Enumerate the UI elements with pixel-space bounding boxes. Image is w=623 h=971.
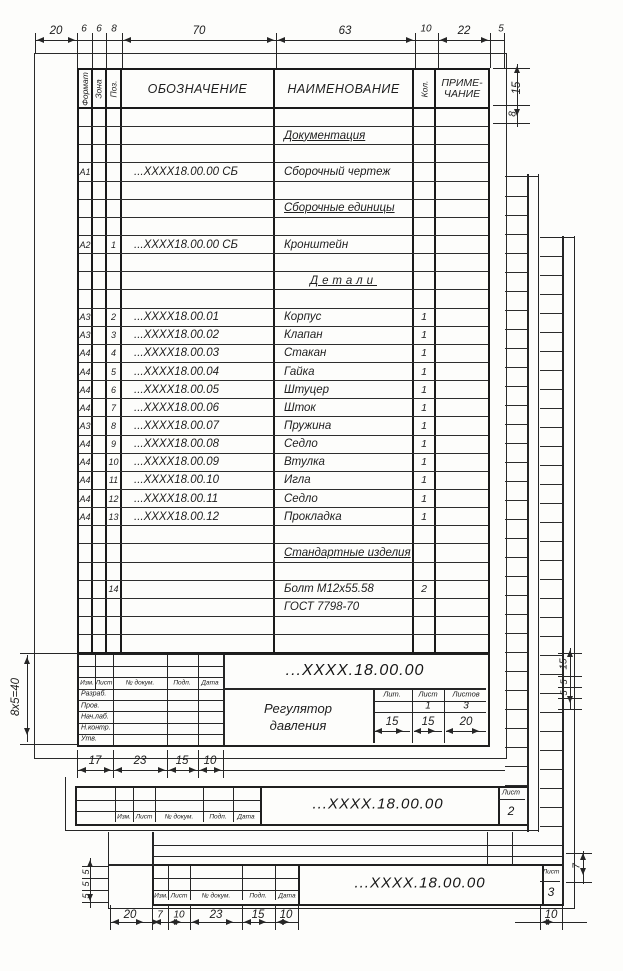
spec-cell-qty-text: 1 xyxy=(421,311,427,323)
dim-strip-5b: 5 xyxy=(559,690,569,695)
rule-line xyxy=(540,881,560,882)
spec-cell-name-text: Седло xyxy=(284,493,318,505)
rule-line xyxy=(115,788,116,822)
spec-cell-name: Штуцер xyxy=(275,381,414,398)
dimension-arrow xyxy=(87,894,93,901)
spec-cell-name xyxy=(275,563,414,580)
s3-designation: ...ХХХХ.18.00.00 xyxy=(354,875,485,892)
spec-cell-name-text: Игла xyxy=(284,474,311,486)
dim-b1-23: 23 xyxy=(134,755,147,767)
dimension-arrow xyxy=(259,919,266,925)
spec-cell-zone xyxy=(93,417,107,434)
header-name-label: НАИМЕНОВАНИЕ xyxy=(287,82,399,96)
title-block-designation: ...ХХХХ.18.00.00 xyxy=(286,662,425,680)
spec-cell-qty xyxy=(414,109,436,126)
spec-row: 14Болт М12х55.582 xyxy=(79,581,488,599)
product-title: Регулятор давления xyxy=(246,690,350,743)
spec-cell-note xyxy=(436,381,488,398)
spec-cell-zone xyxy=(93,182,107,199)
rule-line xyxy=(540,906,541,930)
tb-nkontr: Н.контр. xyxy=(81,725,111,732)
tb-nachlab: Нач.лаб. xyxy=(81,714,109,721)
dim-lit-15b: 15 xyxy=(422,716,435,728)
rule-line xyxy=(562,236,564,903)
spec-cell-pos: 3 xyxy=(107,327,122,344)
spec-cell-qty-text: 1 xyxy=(421,456,427,468)
spec-cell-format-text: А3 xyxy=(79,421,90,431)
dimension-arrow xyxy=(79,767,86,773)
rule-line xyxy=(152,845,562,846)
tb-lit-listov: Листов xyxy=(452,690,479,699)
dim-top-63: 63 xyxy=(339,25,352,37)
dim-b1-17: 17 xyxy=(89,755,102,767)
spec-cell-qty xyxy=(414,290,436,307)
spec-cell-format xyxy=(79,145,93,162)
spec-cell-qty xyxy=(414,127,436,144)
spec-cell-designation xyxy=(122,182,275,199)
s2-list: Лист xyxy=(136,814,153,821)
s2-sheet-value: 2 xyxy=(508,804,515,818)
rule-line xyxy=(108,832,109,909)
rule-line xyxy=(154,890,298,891)
rule-line xyxy=(65,777,66,831)
spec-row: А49...ХХХХ18.00.08Седло1 xyxy=(79,436,488,454)
rule-line xyxy=(79,700,223,701)
spec-cell-name-text: Стандартные изделия xyxy=(284,547,411,559)
spec-row: А47...ХХХХ18.00.06Шток1 xyxy=(79,399,488,417)
spec-cell-designation-text: ...ХХХХ18.00.12 xyxy=(134,511,219,523)
spec-cell-note xyxy=(436,599,488,616)
rule-line xyxy=(77,33,78,68)
rule-line xyxy=(298,905,299,930)
s2-sheet-label: Лист xyxy=(502,790,520,797)
rule-line xyxy=(82,866,108,867)
spec-cell-qty-text: 1 xyxy=(421,511,427,523)
spec-cell-note xyxy=(436,436,488,453)
spec-cell-qty-text: 2 xyxy=(421,583,427,595)
spec-cell-designation-text: ...ХХХХ18.00.06 xyxy=(134,402,219,414)
spec-cell-qty: 1 xyxy=(414,472,436,489)
rule-line xyxy=(77,770,505,771)
spec-cell-name: ГОСТ 7798-70 xyxy=(275,599,414,616)
spec-cell-note xyxy=(436,563,488,580)
spec-cell-designation: ...ХХХХ18.00.00 СБ xyxy=(122,163,275,180)
sheet3-edge-rows xyxy=(540,238,562,866)
spec-cell-qty: 1 xyxy=(414,490,436,507)
spec-cell-format xyxy=(79,526,93,543)
tb-lit-list: Лист xyxy=(418,690,437,699)
spec-row: А410...ХХХХ18.00.09Втулка1 xyxy=(79,454,488,472)
rule-line xyxy=(20,744,77,745)
spec-cell-qty-text: 1 xyxy=(421,493,427,505)
spec-cell-pos: 11 xyxy=(107,472,122,489)
spec-cell-note xyxy=(436,544,488,561)
dimension-arrow xyxy=(267,37,274,43)
rule-line xyxy=(113,750,114,778)
spec-cell-designation: ...ХХХХ18.00.11 xyxy=(122,490,275,507)
rule-line xyxy=(373,701,486,702)
rule-line xyxy=(493,123,530,124)
spec-cell-qty xyxy=(414,544,436,561)
spec-cell-pos-text: 1 xyxy=(111,240,116,250)
spec-cell-designation xyxy=(122,145,275,162)
spec-cell-pos xyxy=(107,127,122,144)
rule-line xyxy=(538,174,539,832)
spec-cell-qty xyxy=(414,563,436,580)
rule-line xyxy=(82,878,108,879)
spec-cell-name: Стандартные изделия xyxy=(275,544,414,561)
spec-cell-pos: 12 xyxy=(107,490,122,507)
tb-col-data: Дата xyxy=(201,680,218,687)
spec-cell-designation xyxy=(122,254,275,271)
tb-col-podp: Подп. xyxy=(173,680,190,687)
sheet2-edge-rows xyxy=(505,178,527,788)
spec-cell-name: Гайка xyxy=(275,363,414,380)
dimension-arrow xyxy=(481,37,488,43)
spec-cell-qty-text: 1 xyxy=(421,474,427,486)
spec-cell-designation-text: ...ХХХХ18.00.04 xyxy=(134,366,219,378)
spec-cell-designation: ...ХХХХ18.00.01 xyxy=(122,309,275,326)
spec-cell-name-text: Клапан xyxy=(284,329,323,341)
dim-strip-15: 15 xyxy=(559,658,570,669)
spec-row: А412...ХХХХ18.00.11Седло1 xyxy=(79,490,488,508)
spec-cell-name-text: Штуцер xyxy=(284,384,329,396)
s3-sheet-label: Лист xyxy=(543,869,560,876)
rule-line xyxy=(168,866,169,900)
spec-cell-pos-text: 10 xyxy=(108,457,118,467)
spec-row: Сборочные единицы xyxy=(79,200,488,218)
tb-col-dokum: № докум. xyxy=(126,680,155,687)
spec-cell-name: Игла xyxy=(275,472,414,489)
rule-line xyxy=(504,33,505,68)
spec-cell-zone xyxy=(93,436,107,453)
rule-line xyxy=(79,723,223,724)
spec-cell-name-text: Прокладка xyxy=(284,511,342,523)
dim-strip-5a: 5 xyxy=(559,679,569,684)
spec-row xyxy=(79,526,488,544)
s3-izm: Изм. xyxy=(154,893,168,900)
spec-cell-pos: 9 xyxy=(107,436,122,453)
spec-cell-format: А4 xyxy=(79,454,93,471)
spec-cell-zone xyxy=(93,345,107,362)
rule-line xyxy=(82,902,108,903)
spec-cell-note xyxy=(436,290,488,307)
rule-line xyxy=(223,688,486,690)
rule-line xyxy=(562,906,563,930)
spec-cell-designation xyxy=(122,290,275,307)
spec-cell-format xyxy=(79,200,93,217)
dimension-arrow xyxy=(580,868,586,875)
header-designation-label: ОБОЗНАЧЕНИЕ xyxy=(148,82,248,96)
spec-cell-qty: 1 xyxy=(414,436,436,453)
tb-col-list: Лист xyxy=(96,680,113,687)
spec-cell-pos xyxy=(107,109,122,126)
rule-line xyxy=(512,832,513,865)
spec-cell-qty xyxy=(414,272,436,289)
spec-cell-note xyxy=(436,635,488,652)
spec-row xyxy=(79,254,488,272)
spec-row: А413...ХХХХ18.00.12Прокладка1 xyxy=(79,508,488,526)
spec-row: А411...ХХХХ18.00.10Игла1 xyxy=(79,472,488,490)
dim-lit-15a: 15 xyxy=(386,716,399,728)
dimension-arrow xyxy=(112,919,119,925)
spec-cell-format xyxy=(79,617,93,634)
spec-cell-qty-text: 1 xyxy=(421,438,427,450)
spec-cell-format xyxy=(79,109,93,126)
rule-line xyxy=(154,878,298,879)
spec-row: А33...ХХХХ18.00.02Клапан1 xyxy=(79,327,488,345)
rule-line xyxy=(223,655,225,745)
spec-cell-format: А4 xyxy=(79,363,93,380)
spec-cell-note xyxy=(436,454,488,471)
spec-cell-designation-text: ...ХХХХ18.00.07 xyxy=(134,420,219,432)
spec-cell-zone xyxy=(93,327,107,344)
spec-cell-zone xyxy=(93,581,107,598)
rule-line xyxy=(490,33,491,68)
spec-cell-zone xyxy=(93,381,107,398)
spec-cell-qty: 1 xyxy=(414,381,436,398)
spec-cell-zone xyxy=(93,544,107,561)
rule-line xyxy=(152,832,154,865)
spec-cell-qty: 1 xyxy=(414,309,436,326)
spec-cell-name xyxy=(275,182,414,199)
spec-cell-note xyxy=(436,345,488,362)
spec-cell-pos xyxy=(107,182,122,199)
spec-cell-qty: 1 xyxy=(414,417,436,434)
spec-row xyxy=(79,109,488,127)
spec-cell-designation: ...ХХХХ18.00.02 xyxy=(122,327,275,344)
spec-cell-name xyxy=(275,635,414,652)
spec-cell-format: А4 xyxy=(79,472,93,489)
spec-cell-qty xyxy=(414,218,436,235)
spec-cell-note xyxy=(436,617,488,634)
dimension-arrow xyxy=(514,109,520,116)
spec-cell-note xyxy=(436,508,488,525)
spec-cell-designation: ...ХХХХ18.00.00 СБ xyxy=(122,236,275,253)
dim-top-6a: 6 xyxy=(81,24,87,35)
dim-b3-23: 23 xyxy=(210,909,223,921)
spec-row xyxy=(79,290,488,308)
spec-cell-zone xyxy=(93,508,107,525)
spec-cell-zone xyxy=(93,363,107,380)
s3-dokum: № докум. xyxy=(202,893,231,900)
spec-cell-pos-text: 3 xyxy=(111,330,116,340)
rule-line xyxy=(223,750,224,778)
rule-line xyxy=(203,788,204,822)
spec-cell-qty xyxy=(414,254,436,271)
spec-cell-name-text: Сборочный чертеж xyxy=(284,166,390,178)
spec-cell-format: А4 xyxy=(79,436,93,453)
spec-cell-designation: ...ХХХХ18.00.10 xyxy=(122,472,275,489)
spec-cell-zone xyxy=(93,563,107,580)
spec-cell-qty-text: 1 xyxy=(421,384,427,396)
spec-cell-designation: ...ХХХХ18.00.05 xyxy=(122,381,275,398)
rule-line xyxy=(438,33,439,68)
spec-cell-qty-text: 1 xyxy=(421,402,427,414)
dim-b3-20: 20 xyxy=(124,909,137,921)
rule-line xyxy=(498,799,525,800)
dim-top-20: 20 xyxy=(50,25,63,37)
dim-top-6b: 6 xyxy=(96,24,102,35)
spec-cell-zone xyxy=(93,272,107,289)
rule-line xyxy=(152,905,153,930)
rule-line xyxy=(373,688,375,743)
dimension-arrow xyxy=(152,919,159,925)
dimension-arrow xyxy=(226,919,233,925)
header-note-label: ПРИМЕ-ЧАНИЕ xyxy=(440,78,484,100)
spec-cell-pos: 10 xyxy=(107,454,122,471)
rule-line xyxy=(152,856,562,857)
rule-line xyxy=(79,689,223,690)
spec-cell-qty: 2 xyxy=(414,581,436,598)
spec-cell-format-text: А4 xyxy=(79,457,90,467)
spec-cell-qty: 1 xyxy=(414,508,436,525)
dim-b1-10: 10 xyxy=(204,755,217,767)
spec-cell-designation-text: ...ХХХХ18.00.01 xyxy=(134,311,219,323)
spec-cell-note xyxy=(436,472,488,489)
spec-row: ГОСТ 7798-70 xyxy=(79,599,488,617)
spec-cell-name-text: Пружина xyxy=(284,420,331,432)
dimension-arrow xyxy=(158,767,165,773)
spec-cell-pos-text: 11 xyxy=(109,475,118,485)
header-format-label: Формат xyxy=(80,72,90,106)
spec-row: А45...ХХХХ18.00.04Гайка1 xyxy=(79,363,488,381)
spec-cell-zone xyxy=(93,145,107,162)
dimension-arrow xyxy=(24,728,30,735)
spec-rows: ДокументацияА1...ХХХХ18.00.00 СБСборочны… xyxy=(79,109,488,652)
spec-cell-name: Втулка xyxy=(275,454,414,471)
spec-cell-designation: ...ХХХХ18.00.07 xyxy=(122,417,275,434)
spec-cell-format xyxy=(79,599,93,616)
spec-cell-format-text: А2 xyxy=(79,240,90,250)
header-pos-label: Поз. xyxy=(109,80,119,97)
spec-cell-pos: 5 xyxy=(107,363,122,380)
spec-cell-qty: 1 xyxy=(414,327,436,344)
spec-cell-name: Сборочный чертеж xyxy=(275,163,414,180)
dimension-arrow xyxy=(124,37,131,43)
rule-line xyxy=(168,905,169,930)
spec-cell-name: Шток xyxy=(275,399,414,416)
rule-line xyxy=(155,788,156,822)
spec-cell-zone xyxy=(93,599,107,616)
spec-cell-designation-text: ...ХХХХ18.00.00 СБ xyxy=(134,166,238,178)
rule-line xyxy=(77,800,260,801)
rule-line xyxy=(20,653,77,654)
tb-prov: Пров. xyxy=(81,703,99,710)
s3-podp: Подп. xyxy=(249,893,266,900)
header-format: Формат xyxy=(79,70,93,107)
spec-cell-qty-text: 1 xyxy=(421,366,427,378)
dimension-arrow xyxy=(244,919,251,925)
spec-cell-designation xyxy=(122,127,275,144)
spec-cell-pos-text: 5 xyxy=(111,367,116,377)
rule-line xyxy=(65,830,538,831)
s3-sheet-value: 3 xyxy=(548,885,555,899)
spec-row: А21...ХХХХ18.00.00 СБКронштейн xyxy=(79,236,488,254)
s2-data: Дата xyxy=(237,814,254,821)
spec-cell-pos xyxy=(107,290,122,307)
spec-cell-note xyxy=(436,127,488,144)
dimension-arrow xyxy=(375,728,382,734)
spec-cell-zone xyxy=(93,635,107,652)
spec-cell-name: Стакан xyxy=(275,345,414,362)
dimension-arrow xyxy=(514,66,520,73)
spec-cell-qty-text: 1 xyxy=(421,420,427,432)
spec-cell-format-text: А4 xyxy=(79,494,90,504)
dimension-arrow xyxy=(567,650,573,657)
spec-cell-zone xyxy=(93,218,107,235)
specification-document: Формат Зона Поз. ОБОЗНАЧЕНИЕ НАИМЕНОВАНИ… xyxy=(0,0,623,971)
spec-cell-pos-text: 6 xyxy=(111,385,116,395)
dimension-arrow xyxy=(472,728,479,734)
dimension-arrow xyxy=(104,767,111,773)
rule-line xyxy=(79,666,223,667)
spec-cell-pos xyxy=(107,145,122,162)
spec-cell-pos: 2 xyxy=(107,309,122,326)
rule-line xyxy=(415,33,416,68)
spec-cell-format xyxy=(79,581,93,598)
spec-cell-pos-text: 14 xyxy=(108,584,118,594)
dimension-arrow xyxy=(169,767,176,773)
header-zone: Зона xyxy=(93,70,107,107)
spec-cell-name-text: Стакан xyxy=(284,347,326,359)
tb-listov-value: 3 xyxy=(463,701,469,712)
spec-cell-designation-text: ...ХХХХ18.00.08 xyxy=(134,438,219,450)
rule-line xyxy=(106,33,107,68)
rule-line xyxy=(517,64,518,127)
rule-line xyxy=(540,237,574,238)
spec-cell-designation: ...ХХХХ18.00.06 xyxy=(122,399,275,416)
spec-cell-name-text: Корпус xyxy=(284,311,321,323)
spec-cell-pos-text: 13 xyxy=(108,512,118,522)
spec-cell-note xyxy=(436,145,488,162)
spec-cell-zone xyxy=(93,490,107,507)
spec-cell-pos xyxy=(107,200,122,217)
spec-cell-format: А2 xyxy=(79,236,93,253)
rule-line xyxy=(190,866,191,900)
spec-table: Формат Зона Поз. ОБОЗНАЧЕНИЕ НАИМЕНОВАНИ… xyxy=(77,68,490,654)
spec-cell-name-text: Гайка xyxy=(284,366,315,378)
rule-line xyxy=(198,750,199,778)
spec-cell-zone xyxy=(93,236,107,253)
spec-row: Стандартные изделия xyxy=(79,544,488,562)
spec-cell-name xyxy=(275,290,414,307)
spec-cell-zone xyxy=(93,109,107,126)
s3-data: Дата xyxy=(278,893,295,900)
spec-row xyxy=(79,635,488,652)
spec-row xyxy=(79,617,488,635)
dim-top-8: 8 xyxy=(111,24,117,35)
spec-row: А32...ХХХХ18.00.01Корпус1 xyxy=(79,309,488,327)
rule-line xyxy=(167,750,168,778)
spec-cell-qty xyxy=(414,635,436,652)
spec-cell-pos-text: 12 xyxy=(108,494,118,504)
spec-cell-pos xyxy=(107,526,122,543)
spec-cell-note xyxy=(436,526,488,543)
spec-row: А1...ХХХХ18.00.00 СБСборочный чертеж xyxy=(79,163,488,181)
rule-line xyxy=(276,33,277,68)
header-zone-label: Зона xyxy=(94,79,104,98)
spec-cell-pos xyxy=(107,272,122,289)
spec-row xyxy=(79,218,488,236)
spec-cell-format: А3 xyxy=(79,327,93,344)
spec-cell-zone xyxy=(93,200,107,217)
header-designation: ОБОЗНАЧЕНИЕ xyxy=(122,70,275,107)
s2-dokum: № докум. xyxy=(165,814,194,821)
spec-cell-qty xyxy=(414,145,436,162)
spec-cell-qty-text: 1 xyxy=(421,329,427,341)
spec-cell-format-text: А3 xyxy=(79,312,90,322)
